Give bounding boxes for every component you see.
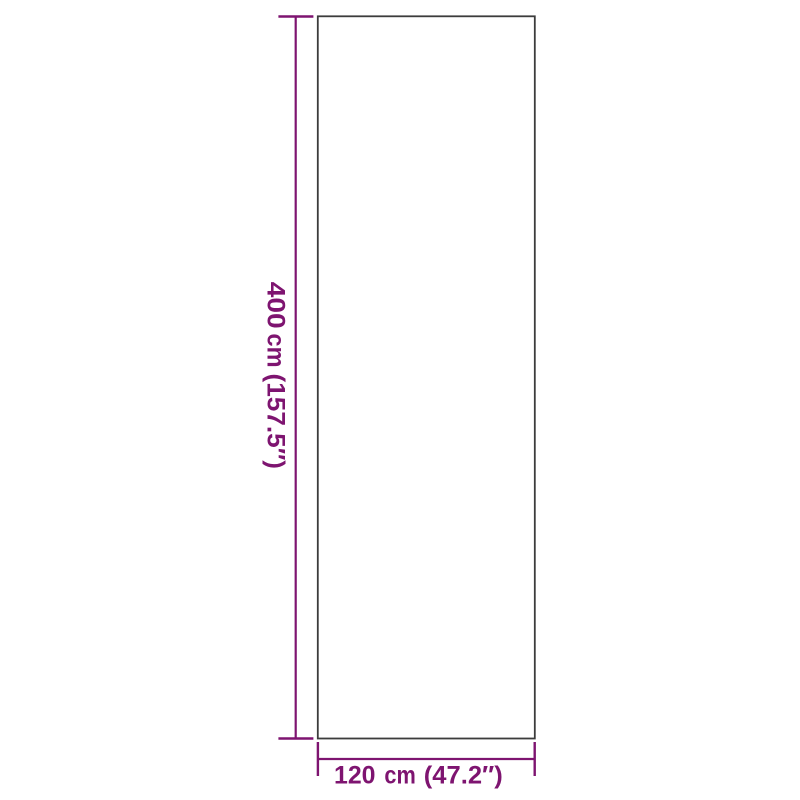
svg-text:400cm(157.5″): 400cm(157.5″) (262, 282, 290, 469)
svg-text:120cm(47.2″): 120cm(47.2″) (334, 761, 503, 789)
